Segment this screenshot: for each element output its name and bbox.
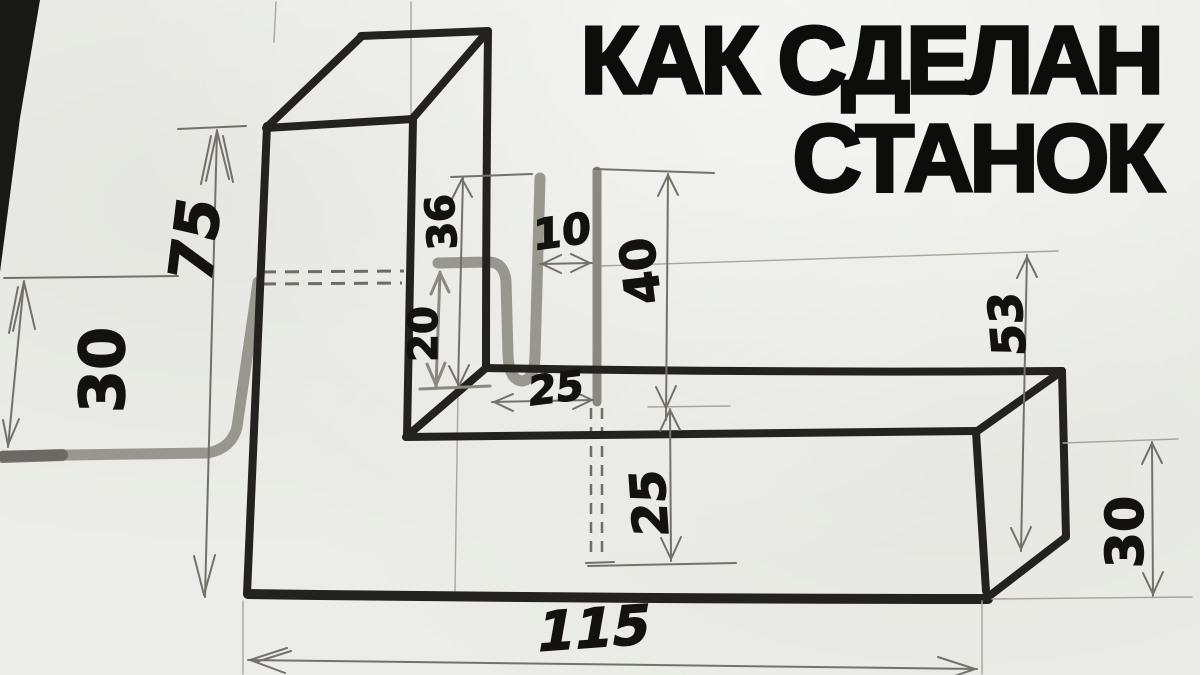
dim-label-20: 20: [404, 306, 444, 362]
dim-line: [248, 660, 977, 669]
column-top-left-edge: [267, 37, 361, 127]
dim-tick: [992, 597, 1192, 599]
dim-arrow-right: [938, 657, 975, 675]
bar-end-bottom-diagonal: [988, 537, 1066, 597]
dim-tick: [420, 386, 490, 389]
column-top-back-edge: [361, 31, 488, 36]
dim-label-115: 115: [533, 598, 655, 661]
column-top-front-edge: [266, 119, 413, 128]
dim-label-36: 36: [420, 193, 464, 251]
dim-label-25-offset: 25: [527, 365, 584, 412]
dim-label-75: 75: [162, 192, 231, 288]
dim-line: [8, 281, 24, 447]
dim-label-40: 40: [613, 235, 669, 307]
rod-tail-end: [3, 455, 62, 457]
dim-label-25-depth: 25: [624, 469, 677, 537]
bar-left-top-diagonal: [406, 368, 486, 437]
bar-end-top-diagonal: [976, 371, 1062, 432]
dim-tick: [178, 126, 246, 129]
column-back-right-edge: [486, 32, 488, 367]
column-front-right-edge: [407, 119, 413, 436]
bar-front-right-edge: [976, 432, 986, 591]
guide-tick: [648, 406, 730, 407]
guide-line: [274, 2, 276, 42]
dim-label-53: 53: [981, 292, 1033, 357]
dim-label-10: 10: [533, 207, 591, 258]
rod-hidden-line: [262, 271, 404, 272]
title-line-2: СТАНОК: [580, 110, 1160, 208]
guide-line: [455, 391, 458, 592]
dim-tick: [1063, 439, 1178, 443]
dim-line: [540, 263, 592, 264]
photographed-sketch-page: 75 30 36 20 10 40 25 25 53 30 115 КАК СД…: [0, 0, 1200, 675]
dim-label-30-right: 30: [1100, 496, 1152, 568]
pin-hidden-foot-tick: [586, 562, 614, 563]
title-line-1: КАК СДЕЛАН: [580, 12, 1160, 110]
dim-label-30-left: 30: [72, 327, 134, 413]
dim-tick: [4, 276, 178, 278]
bar-top-front-edge: [406, 431, 976, 437]
video-title: КАК СДЕЛАН СТАНОК: [580, 12, 1160, 208]
dim-tick: [588, 563, 736, 566]
column-top-right-edge: [413, 31, 488, 118]
bar-end-back-edge: [1062, 371, 1066, 536]
dim-tick: [451, 174, 532, 177]
guide-line-pin-top-level: [600, 251, 1058, 266]
rod-hidden-line: [262, 283, 402, 284]
